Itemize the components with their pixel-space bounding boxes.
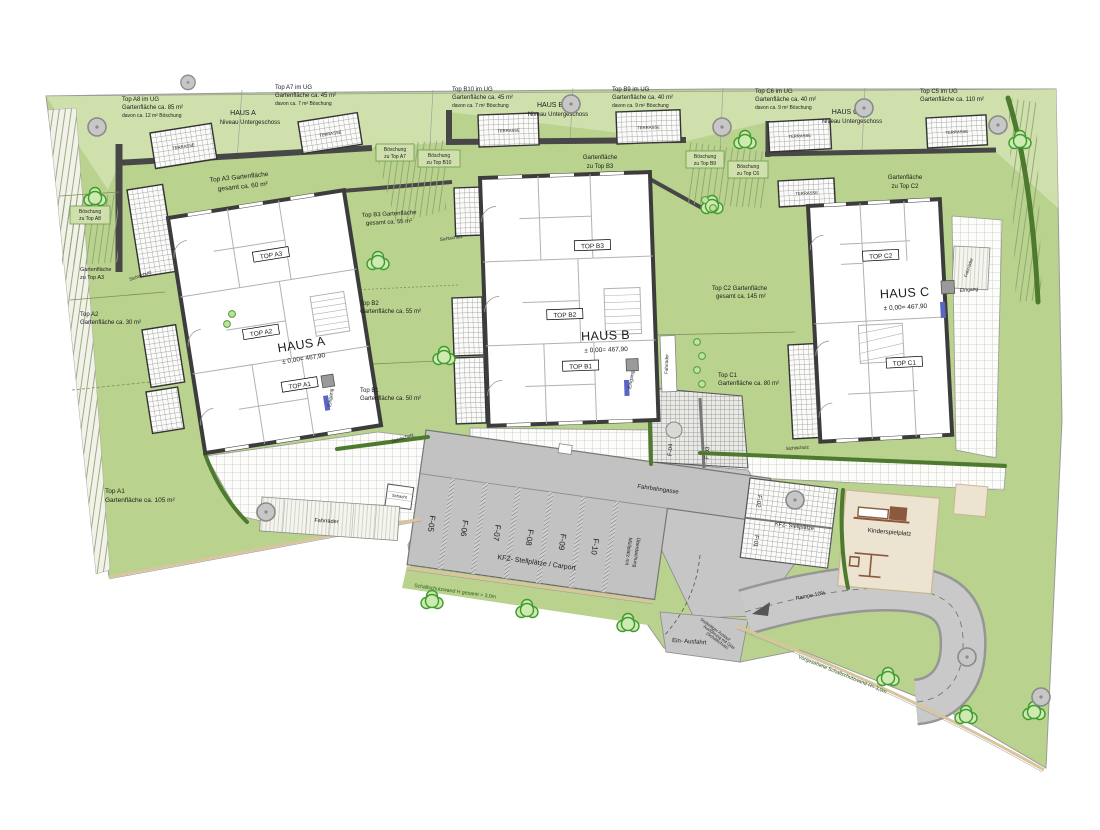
shrub-icon <box>229 311 236 318</box>
garden-a1-l1: Top A1 <box>105 488 125 495</box>
plot-a7-l2: Gartenfläche ca. 45 m² <box>275 93 336 99</box>
haus-b-ug-l1: HAUS B <box>537 102 563 109</box>
plot-a8-l2: Gartenfläche ca. 85 m² <box>122 105 183 111</box>
plot-a7-l3: davon ca. 7 m² Böschung <box>275 101 332 107</box>
slope-a7-l1: Böschung <box>384 147 406 153</box>
existing-tree-icon <box>713 118 731 136</box>
existing-tree-icon <box>88 118 106 136</box>
garden-a1-l2: Gartenfläche ca. 105 m² <box>105 497 176 504</box>
slope-c6-l1: Böschung <box>737 164 759 170</box>
playground: Kinderspielplatz <box>838 490 940 594</box>
house-c-mailbox <box>940 302 946 318</box>
existing-tree-icon <box>257 503 275 521</box>
plot-c5-l1: Top C5 im UG <box>920 89 958 95</box>
site-plan-page: Rampe 10% Ein- Ausfahrt F-05 F-06 F-07 F… <box>0 0 1100 830</box>
garden-gfa3-l2: zu Top A3 <box>80 275 104 281</box>
garden-c2-l2: gesamt ca. 145 m² <box>716 294 766 300</box>
existing-tree-icon <box>181 75 195 89</box>
slope-b9-l2: zu Top B9 <box>694 161 716 167</box>
plot-a8-l1: Top A8 im UG <box>122 97 159 103</box>
svg-text:TOP C2: TOP C2 <box>869 253 893 261</box>
house-b-name: HAUS B <box>581 328 630 344</box>
slope-c6-l2: zu Top C6 <box>737 171 760 177</box>
slope-a8-l2: zu Top A8 <box>79 216 101 222</box>
unit-label-b3: TOP B3 <box>574 239 610 250</box>
svg-text:TOP B3: TOP B3 <box>581 243 604 251</box>
existing-tree-icon <box>958 648 976 666</box>
bike-label-court: Fahrräder <box>664 353 670 373</box>
slope-a7-l2: zu Top A7 <box>384 154 406 160</box>
unit-label-c1: TOP C1 <box>886 356 922 368</box>
unit-label-b1: TOP B1 <box>562 360 598 371</box>
garden-b1-l1: Top B1 <box>360 388 379 394</box>
slope-b10-l2: zu Top B10 <box>427 160 452 166</box>
garden-c2-l1: Top C2 Gartenfläche <box>712 286 768 292</box>
haus-a-ug-l2: Niveau Untergeschoss <box>220 120 280 126</box>
garden-gfa3-l1: Gartenfläche <box>80 267 112 273</box>
unit-label-c2: TOP C2 <box>862 249 898 261</box>
svg-text:TOP C1: TOP C1 <box>893 360 917 368</box>
garden-gfb3-l1: Gartenfläche <box>583 155 618 161</box>
terrace-label: TERRASSE <box>637 124 660 130</box>
garden-a2-l1: Top A2 <box>80 312 99 318</box>
plot-c6-l1: Top C6 im UG <box>755 89 793 95</box>
shrub-icon <box>694 367 701 374</box>
haus-a-ug-l1: HAUS A <box>230 110 256 117</box>
site-plan-drawing: Rampe 10% Ein- Ausfahrt F-05 F-06 F-07 F… <box>0 0 1100 830</box>
sandbox <box>953 484 987 517</box>
existing-tree-icon <box>855 99 873 117</box>
plot-c6-l2: Gartenfläche ca. 40 m² <box>755 97 816 103</box>
garden-gfc2-l2: zu Top C2 <box>892 184 920 190</box>
plot-c6-l3: davon ca. 9 m² Böschung <box>755 105 812 111</box>
existing-tree-icon <box>1032 688 1050 706</box>
house-a: TOP A3 TOP A2 HAUS A ± 0,00= 467,90 TOP … <box>168 190 381 453</box>
slope-a8-l1: Böschung <box>79 209 101 215</box>
house-a-outline <box>168 190 381 453</box>
existing-tree-icon <box>786 491 804 509</box>
visitor-parking: F-02 F-01 KFZ- Stellplätze <box>740 478 837 568</box>
house-c-entrance-canopy <box>941 280 955 294</box>
shrub-icon <box>710 205 717 212</box>
plot-a7-l1: Top A7 im UG <box>275 85 312 91</box>
unit-label-b2: TOP B2 <box>547 308 583 319</box>
terrace-label: TERRASSE <box>497 128 520 134</box>
lane-marker-box <box>558 444 572 455</box>
garden-gfc2-l1: Gartenfläche <box>888 175 923 181</box>
garden-b1-l2: Gartenfläche ca. 50 m² <box>360 396 421 402</box>
shrub-icon <box>699 353 706 360</box>
house-b-entrance-canopy <box>626 359 638 371</box>
shrub-icon <box>699 381 706 388</box>
shrub-icon <box>224 321 231 328</box>
garden-c1-l2: Gartenfläche ca. 80 m² <box>718 381 779 387</box>
shrub-icon <box>702 197 709 204</box>
slope-b10-l1: Böschung <box>428 153 450 159</box>
plot-b9-l2: Gartenfläche ca. 40 m² <box>612 95 673 101</box>
garden-b2-l1: Top B2 <box>360 301 379 307</box>
stall-f04: F-04 <box>668 443 675 456</box>
existing-tree-icon <box>562 95 580 113</box>
garden-gfb3-l2: zu Top B3 <box>587 164 614 170</box>
slope-b9-l1: Böschung <box>694 154 716 160</box>
plot-b9-l1: Top B9 im UG <box>612 87 650 93</box>
plot-b10-l1: Top B10 im UG <box>452 87 493 93</box>
garden-c1-l1: Top C1 <box>718 373 738 379</box>
garden-a2-l2: Gartenfläche ca. 30 m² <box>80 320 141 326</box>
house-c: TOP C2 HAUS C ± 0,00= 467,90 TOP C1 <box>808 199 952 442</box>
haus-c-ug-l1: HAUS C <box>832 109 858 116</box>
plot-b10-l3: davon ca. 7 m² Böschung <box>452 103 509 109</box>
plot-b9-l3: davon ca. 9 m² Böschung <box>612 103 669 109</box>
haus-b-ug-l2: Niveau Untergeschoss <box>528 112 588 118</box>
plot-a8-l3: davon ca. 12 m² Böschung <box>122 113 182 119</box>
garden-b2-l2: Gartenfläche ca. 55 m² <box>360 309 421 315</box>
svg-text:TOP B2: TOP B2 <box>553 312 576 320</box>
haus-c-ug-l2: Niveau Untergeschoss <box>822 119 882 125</box>
house-c-name: HAUS C <box>880 285 930 302</box>
svg-text:TOP B1: TOP B1 <box>569 363 592 371</box>
plot-c5-l2: Gartenfläche ca. 110 m² <box>920 97 984 103</box>
shrub-icon <box>694 339 701 346</box>
existing-tree-icon <box>989 116 1007 134</box>
plot-b10-l2: Gartenfläche ca. 45 m² <box>452 95 513 101</box>
house-a-entrance-canopy <box>321 374 335 388</box>
